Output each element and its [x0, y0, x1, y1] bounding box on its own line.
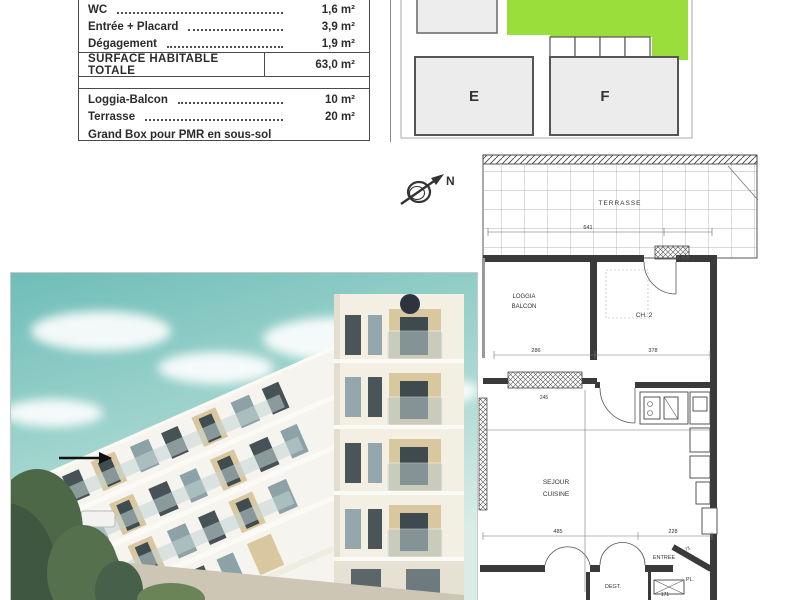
bay-window-hatched — [479, 398, 487, 510]
dotted-leader — [178, 102, 283, 104]
floor-plan: TERRASSE 641 — [478, 152, 778, 600]
row-label: Dégagement — [88, 38, 157, 50]
room-label-hallway: DEGT. — [605, 584, 622, 590]
building-badge: D — [400, 294, 420, 314]
north-arrowhead — [431, 174, 444, 185]
building-block-f — [550, 57, 678, 135]
row-value: 1,9 m² — [297, 38, 369, 50]
diagonal-wall — [673, 547, 711, 569]
right-block — [334, 294, 464, 600]
parking-boxes-row — [550, 37, 650, 57]
row-label: WC — [88, 4, 107, 16]
parking-note: Grand Box pour PMR en sous-sol — [79, 125, 369, 144]
annex-surface-section: Loggia-Balcon 10 m² Terrasse 20 m² Grand… — [79, 89, 369, 144]
table-row: Dégagement 1,9 m² — [79, 35, 369, 52]
table-row: WC 1,6 m² — [79, 1, 369, 18]
room-label-terrasse: TERRASSE — [598, 200, 641, 207]
total-surface-row: SURFACE HABITABLE TOTALE 63,0 m² — [79, 53, 369, 77]
dim-rail: 245 — [540, 395, 549, 401]
surface-table: WC 1,6 m² Entrée + Placard 3,9 m² Dégage… — [78, 0, 370, 141]
room-label-loggia-1: LOGGIA — [512, 294, 535, 300]
dim-entry: 228 — [668, 529, 677, 535]
bedroom-dashed-zone — [606, 270, 648, 318]
room-label-bedroom: CH. 2 — [636, 312, 653, 319]
table-row: Terrasse 20 m² — [79, 108, 369, 125]
terrace-tiling — [483, 164, 757, 258]
room-label-living-1: SEJOUR — [543, 479, 570, 486]
room-label-entry: ENTREE — [653, 555, 676, 561]
block-f-label: F — [600, 88, 609, 105]
building-badge-label: D — [406, 298, 415, 312]
dotted-leader — [188, 29, 283, 31]
row-label: Terrasse — [88, 111, 135, 123]
total-label: SURFACE HABITABLE TOTALE — [79, 53, 265, 76]
table-outer-edge-line — [390, 0, 391, 142]
row-value: 20 m² — [297, 111, 369, 123]
dim-terrasse: 641 — [583, 225, 592, 231]
compass-icon: N — [395, 166, 457, 210]
site-building-small — [417, 0, 497, 33]
table-row: Loggia-Balcon 10 m² — [79, 91, 369, 108]
dim-bedroom: 378 — [648, 348, 657, 354]
window-hatched — [655, 246, 689, 259]
row-value: 10 m² — [297, 94, 369, 106]
room-label-closet: PL. — [686, 577, 695, 583]
site-plan: E F — [398, 0, 694, 140]
building-photo: D — [10, 272, 478, 600]
scanned-property-sheet: { "surface_table": { "rows": [ {"label":… — [0, 0, 800, 600]
room-label-loggia-2: BALCON — [512, 304, 537, 310]
loggia-open-edge — [482, 258, 485, 358]
dim-living: 485 — [553, 529, 562, 535]
dim-corner: 73 — [684, 545, 691, 552]
table-row: Entrée + Placard 3,9 m² — [79, 18, 369, 35]
dotted-leader — [145, 119, 283, 121]
dotted-leader — [167, 46, 283, 48]
terrace-top-wall — [483, 155, 757, 164]
dotted-leader — [117, 12, 283, 14]
table-spacer — [79, 77, 369, 89]
block-e-label: E — [469, 88, 479, 105]
balcony-rail-hatched — [508, 372, 582, 388]
room-label-living-2: CUISINE — [543, 491, 570, 498]
dim-loggia: 286 — [531, 348, 540, 354]
row-label: Loggia-Balcon — [88, 94, 168, 106]
north-label: N — [446, 174, 455, 188]
dim-closet: 171 — [661, 592, 670, 598]
room-surface-section: WC 1,6 m² Entrée + Placard 3,9 m² Dégage… — [79, 0, 369, 53]
row-value: 1,6 m² — [297, 4, 369, 16]
total-value: 63,0 m² — [265, 59, 369, 71]
row-value: 3,9 m² — [297, 21, 369, 33]
parked-van — [81, 511, 115, 527]
row-label: Entrée + Placard — [88, 21, 178, 33]
fixture-details — [648, 397, 685, 594]
